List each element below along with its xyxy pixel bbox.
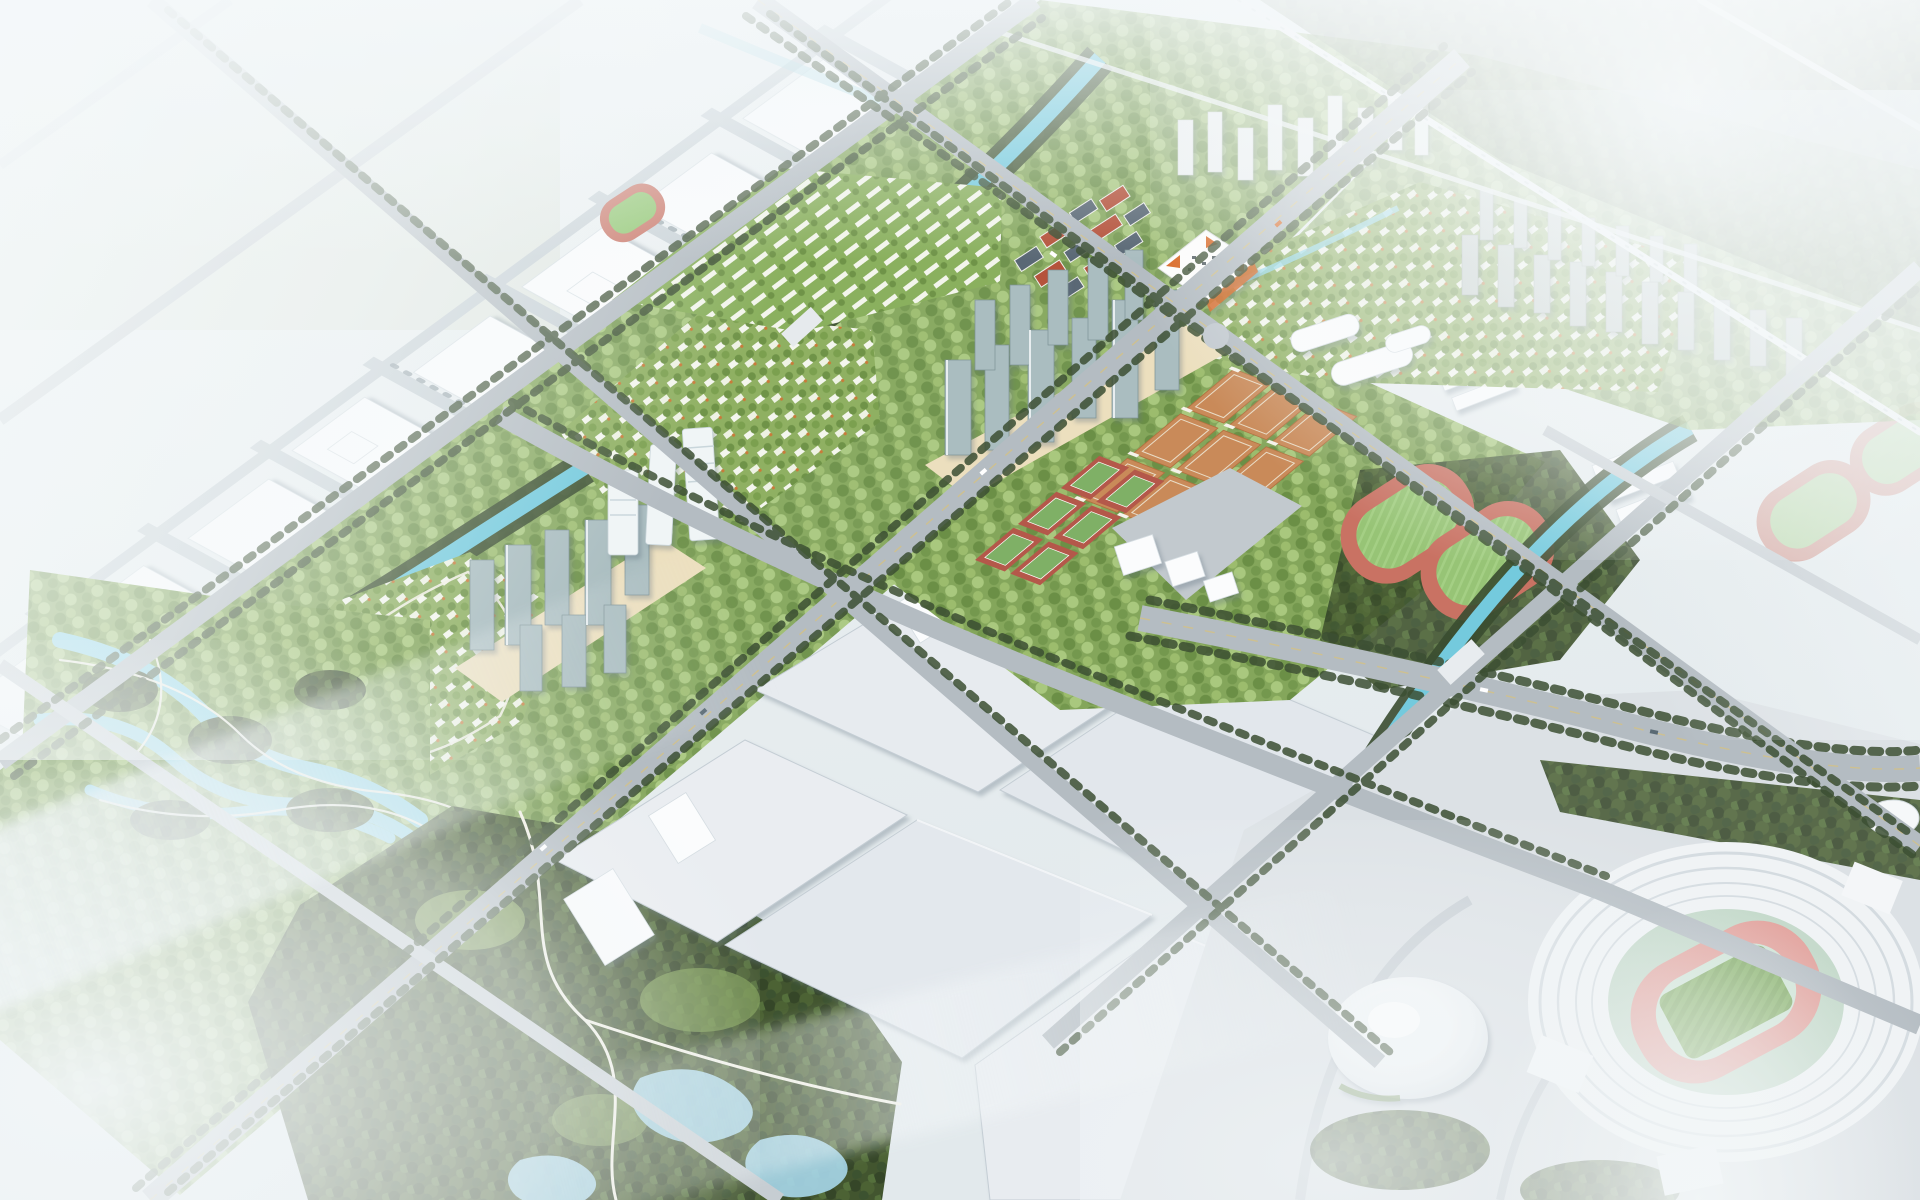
- masterplan-rendering: [0, 0, 1920, 1200]
- intersection: [1203, 323, 1229, 349]
- aerial-scene: [0, 0, 1920, 1200]
